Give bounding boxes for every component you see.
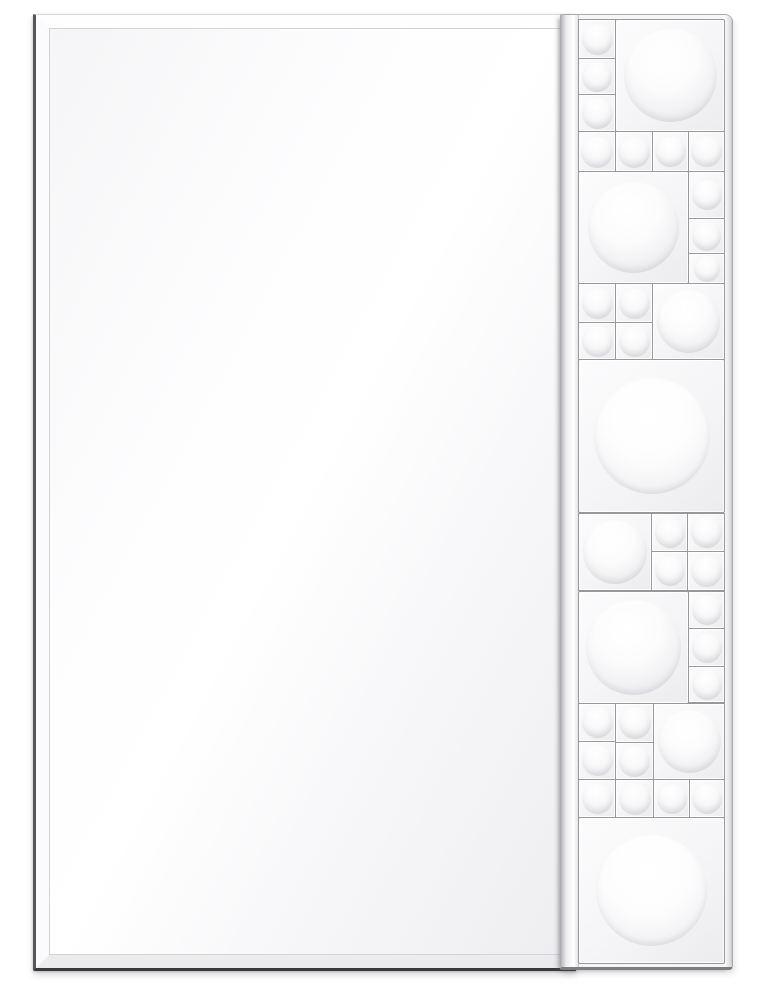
bubble-tile: [652, 131, 689, 172]
bubble-tile: [578, 703, 616, 742]
bubble-tile: [653, 703, 725, 780]
glass-bubble: [655, 518, 685, 548]
glass-bubble: [619, 783, 651, 815]
glass-bubble: [586, 600, 681, 695]
glass-bubble: [619, 746, 650, 777]
product-photo: [0, 0, 758, 1000]
glass-bubble: [692, 670, 722, 700]
glass-bubble: [657, 784, 687, 814]
glass-bubble: [582, 707, 613, 738]
glass-bubble: [657, 290, 720, 353]
bubble-tile: [688, 171, 725, 219]
glass-bubble: [692, 222, 721, 251]
glass-bubble: [624, 29, 717, 122]
glass-bubble: [692, 784, 722, 814]
bubble-tile: [578, 171, 689, 284]
glass-bubble: [619, 288, 650, 319]
bubble-tile: [578, 19, 616, 59]
bubble-tile: [615, 19, 725, 132]
glass-bubble: [582, 326, 613, 357]
glass-bubble: [655, 136, 686, 167]
bubble-tile: [688, 628, 725, 667]
glass-bubble: [581, 136, 613, 168]
glass-bubble: [658, 710, 721, 773]
glass-bubble: [691, 517, 722, 548]
bubble-tile: [687, 513, 725, 552]
bubble-tile: [615, 322, 653, 360]
glass-bubble: [655, 556, 685, 586]
glass-bubble: [691, 136, 722, 167]
bubble-tile: [578, 513, 652, 591]
bubble-tile: [689, 779, 725, 818]
glass-bubble: [582, 288, 613, 319]
glass-bubble: [692, 633, 722, 663]
bubble-tile: [578, 131, 616, 172]
bubble-tile: [578, 359, 725, 513]
bubble-tile: [688, 591, 725, 629]
bubble-tile: [578, 283, 616, 323]
bubble-tile: [615, 779, 654, 818]
bubble-tile: [688, 131, 725, 172]
glass-bubble: [619, 326, 650, 357]
glass-bubble: [618, 136, 650, 168]
glass-bubble: [583, 520, 647, 584]
glass-bubble: [692, 180, 722, 210]
bubble-tile: [578, 817, 725, 964]
glass-bubble: [594, 378, 710, 494]
bubble-tile: [615, 742, 654, 780]
bubble-tile: [578, 779, 616, 818]
bubble-tile: [578, 58, 616, 95]
bubble-tile: [688, 253, 725, 284]
glass-bubble: [588, 182, 679, 273]
bubble-tile: [687, 551, 725, 591]
glass-bubble: [582, 783, 613, 814]
bubble-tile: [615, 283, 653, 323]
bubble-tile: [578, 94, 616, 132]
glass-bubble: [582, 745, 613, 776]
glass-bubble: [582, 98, 613, 129]
bubble-tile: [578, 741, 616, 780]
glass-bubble: [694, 256, 720, 282]
bubble-tile: [615, 131, 653, 172]
tile-strip: [0, 0, 758, 1000]
bubble-tile: [651, 513, 688, 552]
glass-bubble: [582, 62, 612, 92]
glass-bubble: [619, 707, 651, 739]
glass-bubble: [582, 24, 613, 55]
glass-bubble: [691, 556, 722, 587]
bubble-tile: [578, 322, 616, 360]
bubble-tile: [651, 551, 688, 591]
glass-bubble: [596, 835, 707, 946]
bubble-tile: [578, 591, 689, 704]
bubble-tile: [653, 779, 690, 818]
bubble-tile: [652, 283, 725, 360]
bubble-tile: [688, 666, 725, 703]
bubble-tile: [688, 218, 725, 254]
bubble-tile: [615, 703, 654, 743]
glass-bubble: [692, 595, 722, 625]
